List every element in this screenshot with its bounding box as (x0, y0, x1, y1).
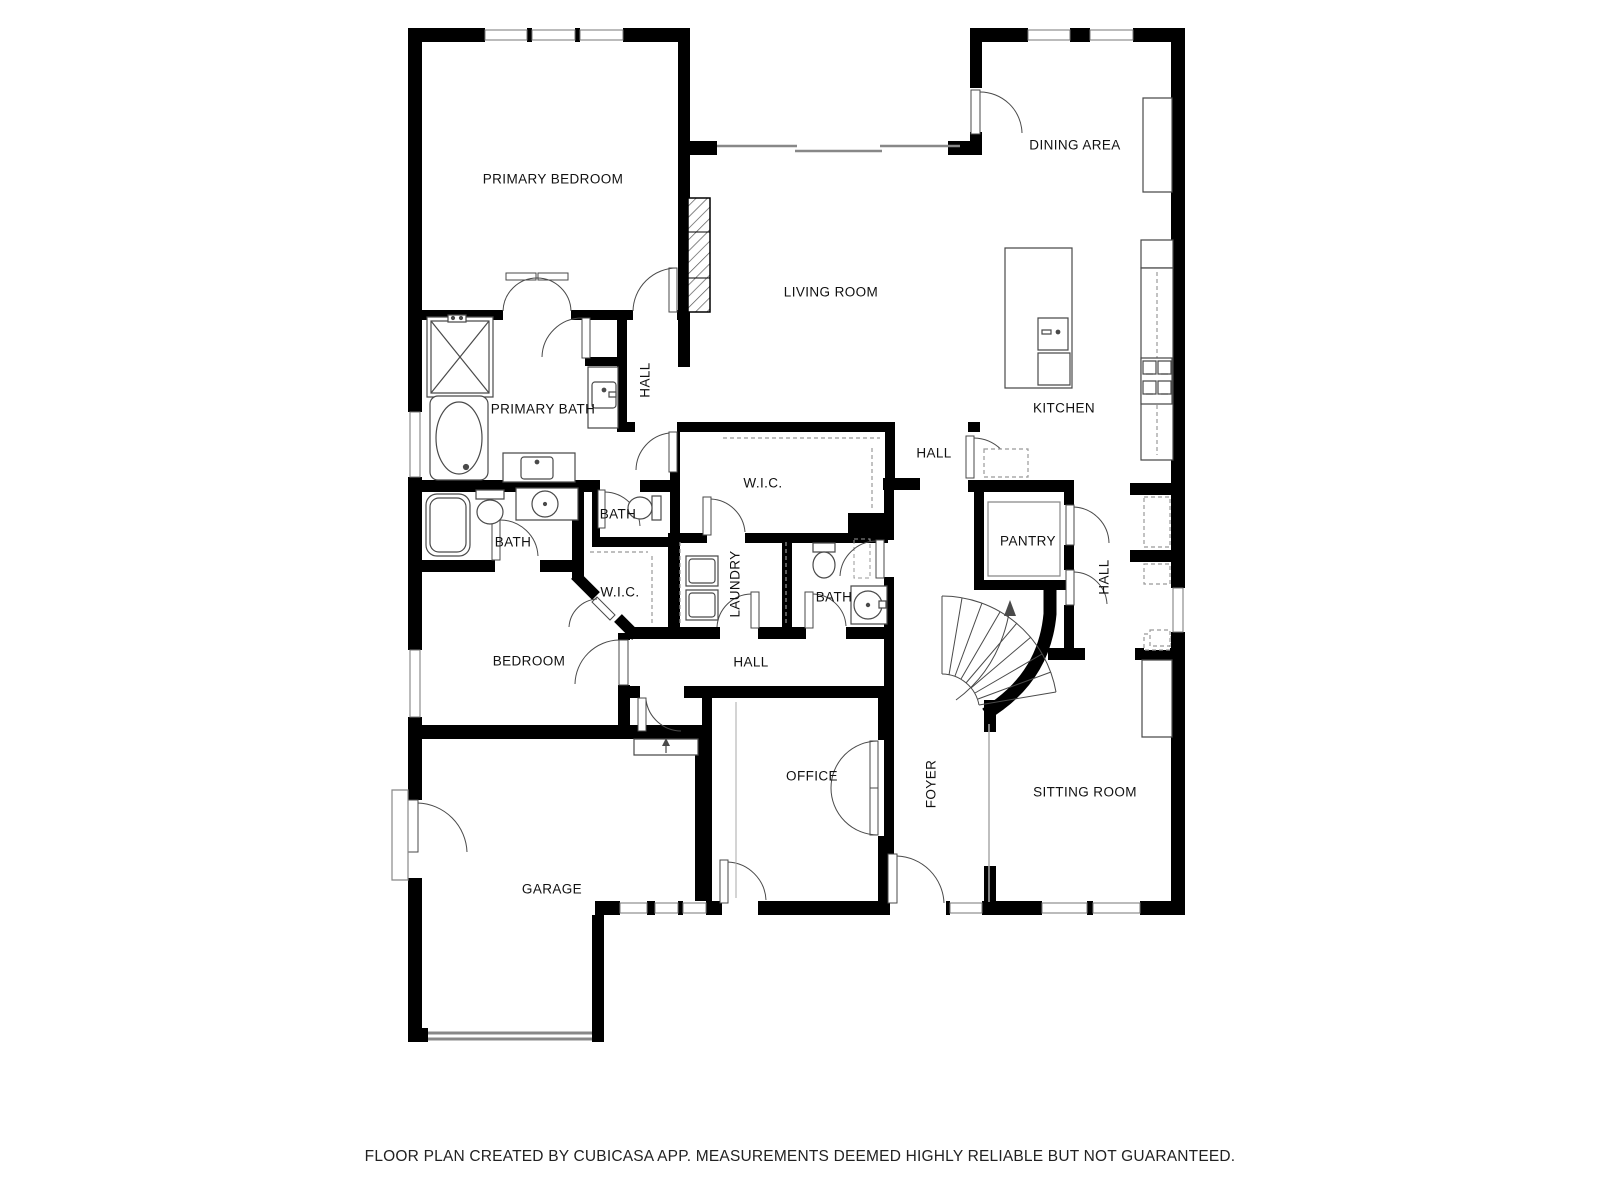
room-label-wic-bedroom: W.I.C. (600, 585, 639, 600)
room-label-sitting-room: SITTING ROOM (1033, 785, 1137, 800)
tub-lower-bath (426, 494, 470, 556)
stairs-up-arrow-icon (1004, 600, 1016, 616)
bedroom-wic-door (569, 597, 615, 627)
room-label-primary-bath: PRIMARY BATH (491, 402, 596, 417)
room-label-hall-lower: HALL (733, 655, 768, 670)
bedroom-hall-door (633, 268, 677, 312)
office-back-door (720, 860, 766, 903)
foyer-closet-door (840, 539, 884, 578)
sitting-room-cabinet (1142, 660, 1172, 737)
garage-door (428, 1028, 592, 1042)
room-label-wic-main: W.I.C. (743, 476, 782, 491)
room-label-bath-toilet-room: BATH (600, 507, 637, 522)
mudroom-cabinets (1144, 497, 1170, 650)
pantry-door (1066, 505, 1109, 545)
room-label-hall-right: HALL (1097, 559, 1112, 594)
hall-cabinet (984, 449, 1028, 477)
sink-lower-bath (516, 488, 578, 520)
doors (406, 90, 1109, 903)
bathtub (430, 396, 488, 480)
room-label-bath-left: BATH (495, 535, 532, 550)
room-label-garage: GARAGE (522, 882, 582, 897)
room-label-living-room: LIVING ROOM (784, 285, 878, 300)
primary-vanity-bottom (503, 453, 575, 482)
wic-laundry-door (703, 497, 745, 535)
room-label-office: OFFICE (786, 769, 838, 784)
room-label-bath-middle: BATH (816, 590, 853, 605)
sliding-door-opening (717, 146, 960, 151)
kitchen-counter-right (1141, 98, 1173, 460)
toilet-lower-bath (476, 490, 504, 524)
room-label-hall-center: HALL (916, 446, 951, 461)
room-label-bedroom: BEDROOM (493, 654, 566, 669)
room-label-laundry: LAUNDRY (728, 550, 743, 617)
dining-entry-door (971, 90, 1022, 134)
office-double-doors (831, 741, 878, 835)
room-label-primary-bedroom: PRIMARY BEDROOM (483, 172, 624, 187)
window-glyphs-horizontal-top (485, 30, 1133, 40)
kitchen-island (1005, 248, 1072, 388)
garage-step (634, 738, 698, 755)
shower (427, 315, 493, 397)
bedroom-french-doors (503, 273, 571, 311)
room-label-kitchen: KITCHEN (1033, 401, 1095, 416)
floor-plan-page: PRIMARY BEDROOM DINING AREA LIVING ROOM … (0, 0, 1600, 1200)
stove (1141, 358, 1172, 404)
room-label-dining-area: DINING AREA (1029, 138, 1120, 153)
fixtures (392, 98, 1173, 902)
primary-bath-door (542, 318, 590, 358)
front-door (888, 854, 944, 903)
mid-bath-sink (851, 586, 887, 624)
room-label-pantry: PANTRY (1000, 534, 1056, 549)
garage-entry-door (406, 800, 467, 852)
suite-vestibule-door (636, 432, 677, 472)
bedroom-door (575, 640, 628, 685)
room-label-hall-suite: HALL (638, 362, 653, 397)
washer-dryer (686, 556, 718, 620)
room-label-foyer: FOYER (924, 760, 939, 809)
floor-plan-drawing (0, 0, 1600, 1200)
primary-vanity-side (588, 367, 618, 428)
disclaimer-text: FLOOR PLAN CREATED BY CUBICASA APP. MEAS… (365, 1148, 1236, 1166)
garage-stoop (392, 790, 408, 880)
mid-bath-toilet (813, 543, 835, 578)
